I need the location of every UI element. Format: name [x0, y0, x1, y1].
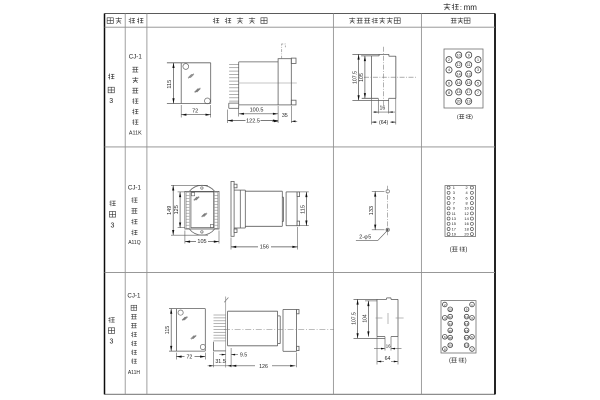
svg-text:16: 16	[449, 329, 453, 333]
svg-text:CJ-1: CJ-1	[129, 54, 143, 61]
svg-text:): )	[465, 358, 467, 364]
svg-text:11: 11	[465, 315, 468, 319]
svg-text:105: 105	[359, 73, 365, 82]
svg-text:18: 18	[457, 90, 461, 94]
svg-text:105: 105	[197, 239, 206, 245]
svg-text:CJ-1: CJ-1	[127, 293, 141, 300]
svg-text:(64): (64)	[379, 120, 388, 126]
svg-text:9.5: 9.5	[240, 352, 247, 358]
svg-text:156: 156	[260, 244, 269, 250]
svg-text:3: 3	[110, 339, 114, 346]
svg-text:18: 18	[449, 336, 453, 340]
svg-text:): )	[465, 247, 467, 253]
svg-text:8: 8	[448, 91, 450, 95]
svg-text:1: 1	[477, 58, 479, 62]
svg-text:12: 12	[457, 63, 461, 67]
svg-text:11: 11	[467, 63, 471, 67]
svg-text:A11Q: A11Q	[128, 240, 141, 246]
svg-text:CJ-1: CJ-1	[128, 185, 142, 192]
svg-text:100.5: 100.5	[250, 107, 264, 113]
svg-text:17: 17	[465, 336, 469, 340]
svg-text:3: 3	[477, 68, 479, 72]
svg-text:2: 2	[448, 58, 450, 62]
svg-text:): )	[471, 115, 473, 121]
svg-text:133: 133	[369, 206, 375, 215]
svg-text:31.5: 31.5	[215, 359, 225, 365]
svg-text:13: 13	[465, 322, 469, 326]
svg-text:9: 9	[468, 53, 470, 57]
svg-text:72: 72	[186, 354, 192, 360]
svg-text:122.5: 122.5	[246, 119, 260, 125]
svg-text:20: 20	[457, 100, 461, 104]
svg-text:A11K: A11K	[129, 131, 142, 137]
svg-text:126: 126	[259, 364, 268, 370]
svg-text:35: 35	[282, 113, 288, 119]
svg-text:7: 7	[477, 91, 479, 95]
svg-text:125: 125	[174, 205, 180, 214]
svg-text:3: 3	[111, 223, 115, 230]
svg-text:16: 16	[386, 343, 391, 348]
svg-text:115: 115	[165, 326, 171, 334]
svg-text:64: 64	[385, 356, 391, 362]
svg-text:(: (	[450, 247, 452, 253]
svg-text:mm: mm	[464, 3, 478, 12]
svg-text:15: 15	[465, 329, 469, 333]
svg-text:104: 104	[362, 314, 368, 323]
svg-text:107.5: 107.5	[352, 71, 358, 84]
svg-text:16: 16	[380, 106, 386, 112]
svg-text:17: 17	[467, 90, 471, 94]
svg-text:72: 72	[192, 109, 198, 115]
svg-text:149: 149	[167, 206, 173, 215]
svg-text:3: 3	[109, 98, 113, 105]
svg-text:A11H: A11H	[128, 370, 141, 376]
svg-text:14: 14	[449, 322, 453, 326]
svg-text:15: 15	[467, 81, 471, 85]
svg-text:19: 19	[452, 232, 456, 237]
svg-text:16: 16	[457, 81, 461, 85]
svg-text:19: 19	[465, 344, 469, 348]
svg-text:6: 6	[448, 82, 450, 86]
svg-text:107.5: 107.5	[352, 312, 358, 325]
svg-text:19: 19	[467, 100, 471, 104]
svg-text:(: (	[457, 115, 459, 121]
svg-text::: :	[460, 3, 462, 12]
svg-text:14: 14	[457, 72, 461, 76]
svg-text:5: 5	[368, 235, 371, 241]
svg-text:115: 115	[167, 80, 173, 89]
svg-text:12: 12	[449, 315, 453, 319]
svg-text:13: 13	[467, 72, 471, 76]
svg-text:10: 10	[457, 53, 461, 57]
svg-text:(: (	[449, 358, 451, 364]
svg-text:10: 10	[449, 308, 453, 312]
svg-text:4: 4	[448, 68, 450, 72]
svg-text:5: 5	[477, 82, 479, 86]
svg-text:20: 20	[449, 344, 453, 348]
svg-text:115: 115	[300, 205, 306, 214]
